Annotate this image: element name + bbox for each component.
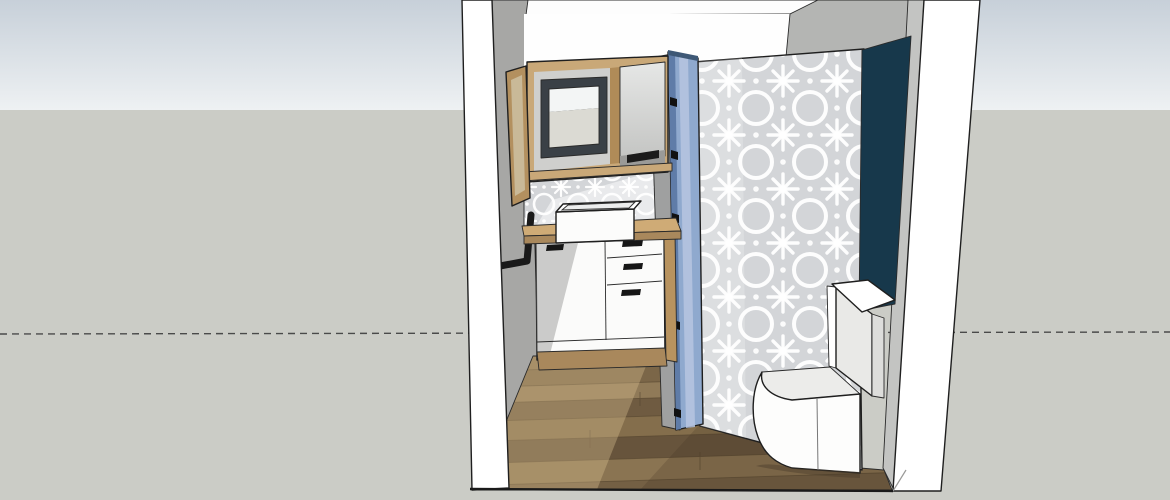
vanity-side-panel xyxy=(664,234,677,362)
ceiling[interactable] xyxy=(526,0,820,15)
vanity-plinth xyxy=(537,348,667,370)
vessel-sink[interactable] xyxy=(556,201,641,243)
model-viewport[interactable] xyxy=(0,0,1170,500)
toilet-tank-side xyxy=(827,286,836,368)
mirror xyxy=(541,77,607,158)
cabinet-mirror-door[interactable] xyxy=(620,62,665,163)
wood-mirror-cabinet[interactable] xyxy=(523,56,672,182)
